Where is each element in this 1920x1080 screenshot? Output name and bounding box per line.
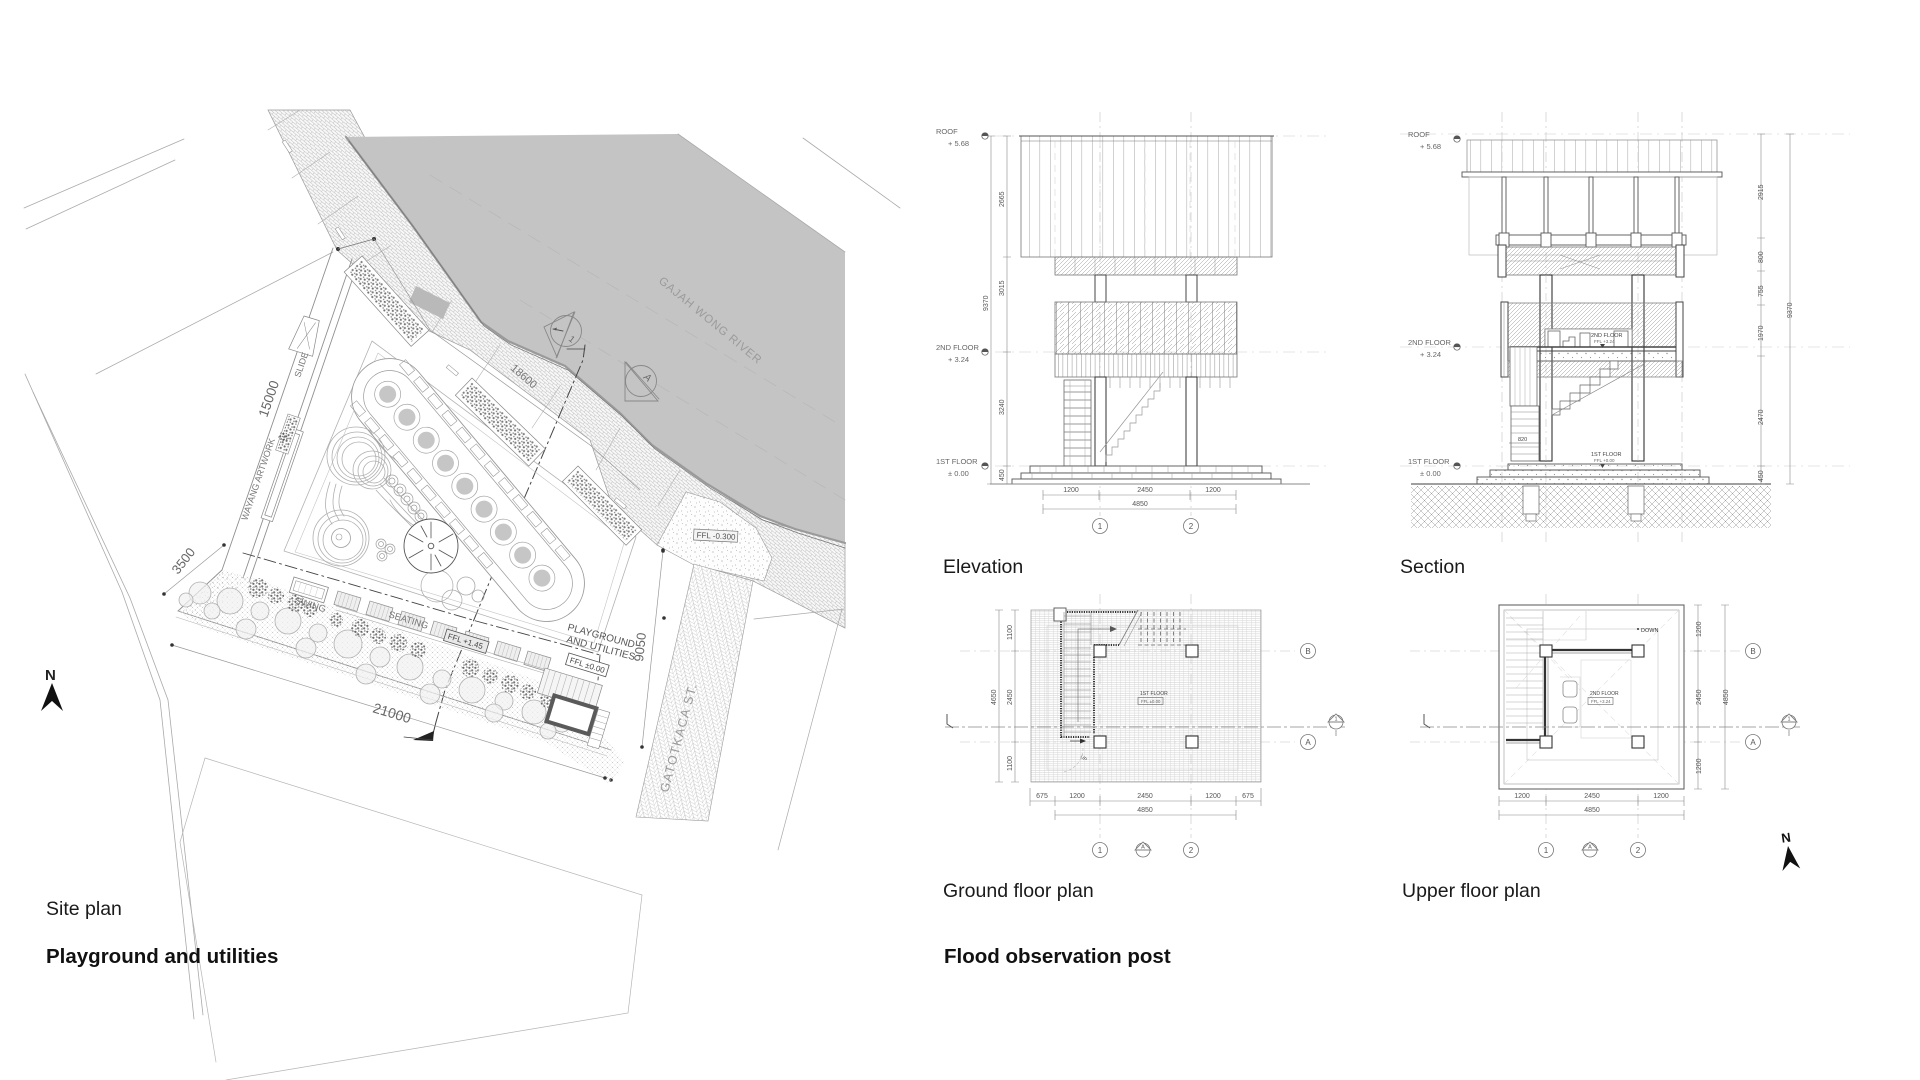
svg-text:SLIDE: SLIDE: [292, 351, 310, 379]
svg-text:4850: 4850: [1723, 689, 1730, 705]
svg-text:1ST FLOOR: 1ST FLOOR: [936, 457, 978, 466]
svg-text:4650: 4650: [991, 689, 998, 705]
svg-text:1200: 1200: [1696, 621, 1703, 637]
svg-text:4850: 4850: [1137, 807, 1153, 814]
svg-text:3500: 3500: [169, 545, 199, 577]
svg-text:1200: 1200: [1653, 793, 1669, 800]
svg-text:2470: 2470: [1758, 409, 1765, 425]
svg-text:Playground and utilities: Playground and utilities: [46, 945, 278, 968]
svg-text:A: A: [1750, 738, 1756, 747]
svg-text:9370: 9370: [983, 295, 990, 311]
svg-text:2450: 2450: [1137, 487, 1153, 494]
svg-text:1200: 1200: [1069, 793, 1085, 800]
svg-text:1: 1: [1787, 717, 1790, 723]
svg-text:Ground floor plan: Ground floor plan: [943, 880, 1094, 902]
svg-text:2450: 2450: [1696, 689, 1703, 705]
svg-text:9050: 9050: [631, 632, 649, 662]
svg-text:Site plan: Site plan: [46, 898, 122, 920]
svg-text:4850: 4850: [1584, 807, 1600, 814]
svg-text:9370: 9370: [1787, 302, 1794, 318]
svg-text:2: 2: [1189, 846, 1194, 855]
svg-text:15000: 15000: [256, 379, 282, 419]
svg-text:DOWN: DOWN: [1641, 628, 1658, 634]
svg-text:820: 820: [1518, 437, 1527, 443]
svg-text:1: 1: [1098, 846, 1103, 855]
svg-text:ROOF: ROOF: [936, 127, 958, 136]
svg-text:2450: 2450: [1007, 689, 1014, 705]
svg-text:Section: Section: [1400, 556, 1465, 578]
svg-text:21000: 21000: [371, 700, 413, 727]
svg-text:675: 675: [1036, 793, 1048, 800]
svg-text:1: 1: [1098, 522, 1103, 531]
svg-text:Elevation: Elevation: [943, 556, 1023, 578]
svg-text:2: 2: [1636, 846, 1641, 855]
svg-text:FFL ±0.00: FFL ±0.00: [1141, 699, 1161, 704]
svg-text:2450: 2450: [1137, 793, 1153, 800]
svg-text:3240: 3240: [999, 399, 1006, 415]
svg-text:1200: 1200: [1696, 758, 1703, 774]
svg-text:A: A: [1141, 845, 1145, 851]
svg-text:675: 675: [1242, 793, 1254, 800]
svg-text:A: A: [1305, 738, 1311, 747]
svg-text:2ND FLOOR: 2ND FLOOR: [936, 343, 980, 352]
svg-text:1970: 1970: [1758, 325, 1765, 341]
svg-text:+ 5.68: + 5.68: [948, 139, 969, 148]
svg-text:450: 450: [999, 469, 1006, 481]
svg-text:2665: 2665: [999, 191, 1006, 207]
svg-text:2450: 2450: [1584, 793, 1600, 800]
svg-text:3015: 3015: [999, 280, 1006, 296]
svg-text:1100: 1100: [1007, 756, 1014, 771]
svg-text:1: 1: [1334, 717, 1337, 723]
svg-text:B: B: [1750, 647, 1755, 656]
svg-text:N: N: [1780, 830, 1791, 846]
svg-text:1ST FLOOR: 1ST FLOOR: [1408, 457, 1450, 466]
svg-text:A: A: [1588, 845, 1592, 851]
svg-text:N: N: [45, 667, 56, 684]
svg-text:1200: 1200: [1205, 487, 1221, 494]
svg-text:2915: 2915: [1758, 184, 1765, 200]
svg-text:+ 5.68: + 5.68: [1420, 142, 1441, 151]
svg-text:FFL +3.24: FFL +3.24: [1594, 339, 1615, 344]
svg-text:4850: 4850: [1132, 501, 1148, 508]
svg-text:1ST FLOOR: 1ST FLOOR: [1140, 691, 1168, 697]
svg-text:450: 450: [1758, 470, 1765, 482]
svg-text:Upper floor plan: Upper floor plan: [1402, 880, 1541, 902]
svg-text:FFL +3.24: FFL +3.24: [1591, 699, 1611, 704]
svg-text:1100: 1100: [1007, 625, 1014, 640]
svg-text:1200: 1200: [1205, 793, 1221, 800]
svg-text:+ 3.24: + 3.24: [1420, 350, 1441, 359]
svg-text:B: B: [1305, 647, 1310, 656]
svg-text:+ 3.24: + 3.24: [948, 355, 969, 364]
svg-text:1200: 1200: [1514, 793, 1530, 800]
svg-text:Flood observation post: Flood observation post: [944, 945, 1171, 968]
svg-text:± 0.00: ± 0.00: [948, 469, 969, 478]
svg-text:1200: 1200: [1063, 487, 1079, 494]
svg-text:2ND FLOOR: 2ND FLOOR: [1590, 691, 1619, 697]
svg-text:800: 800: [1758, 251, 1765, 263]
svg-text:± 0.00: ± 0.00: [1420, 469, 1441, 478]
svg-text:2ND FLOOR: 2ND FLOOR: [1408, 338, 1452, 347]
svg-text:755: 755: [1758, 285, 1765, 297]
svg-text:2: 2: [1189, 522, 1194, 531]
svg-text:ROOF: ROOF: [1408, 130, 1430, 139]
svg-text:FFL +0.00: FFL +0.00: [1594, 458, 1615, 463]
svg-text:1: 1: [1544, 846, 1549, 855]
